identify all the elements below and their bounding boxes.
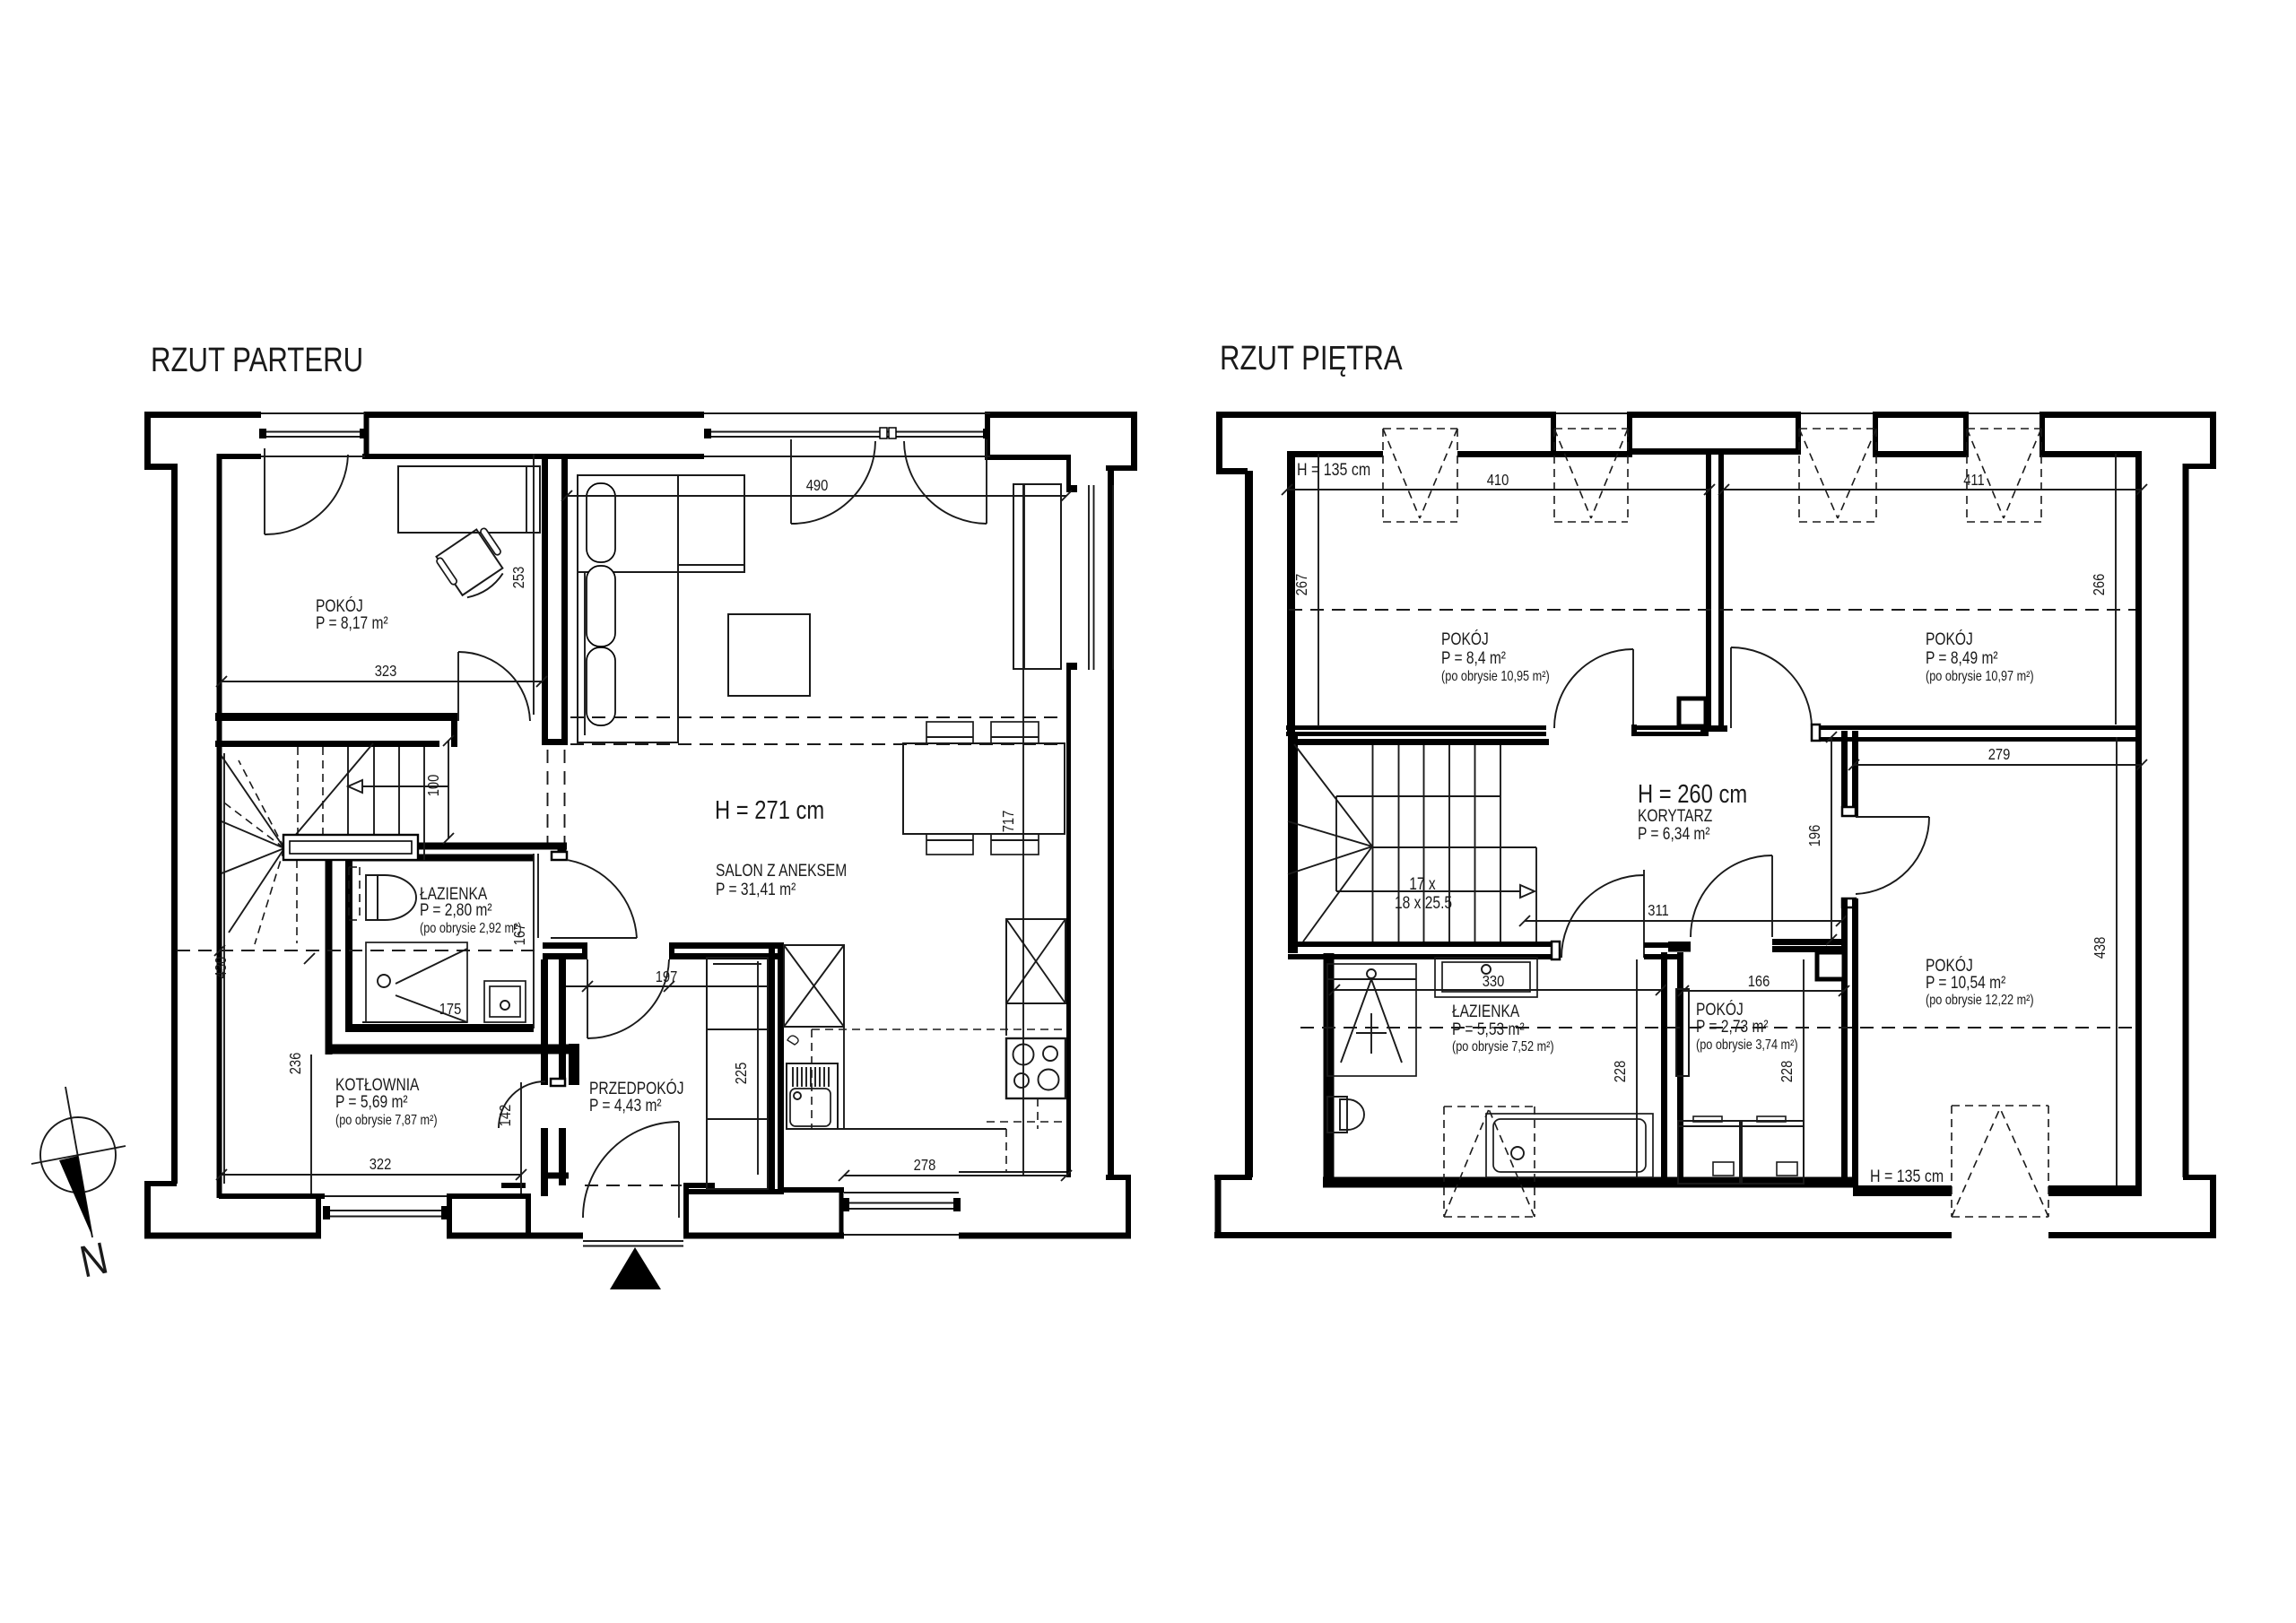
- svg-text:330: 330: [1483, 973, 1505, 991]
- svg-text:197: 197: [656, 968, 678, 986]
- svg-text:P = 8,49 m²: P = 8,49 m²: [1926, 648, 1998, 668]
- svg-text:279: 279: [1988, 746, 2011, 764]
- svg-text:P = 4,43 m²: P = 4,43 m²: [589, 1096, 662, 1115]
- svg-text:228: 228: [1612, 1061, 1630, 1083]
- svg-text:225: 225: [733, 1063, 751, 1085]
- svg-text:POKÓJ: POKÓJ: [1926, 629, 1973, 649]
- svg-text:166: 166: [1748, 973, 1770, 991]
- svg-text:H = 135 cm: H = 135 cm: [1870, 1167, 1944, 1186]
- svg-text:P = 5,53 m²: P = 5,53 m²: [1452, 1020, 1525, 1039]
- svg-text:18 x 25.5: 18 x 25.5: [1395, 893, 1452, 913]
- svg-text:P = 6,34 m²: P = 6,34 m²: [1638, 824, 1710, 844]
- svg-text:(po obrysie 7,52 m²): (po obrysie 7,52 m²): [1452, 1039, 1554, 1055]
- svg-text:236: 236: [287, 1053, 305, 1075]
- svg-text:SALON Z ANEKSEM: SALON Z ANEKSEM: [716, 861, 847, 881]
- svg-text:17 x: 17 x: [1409, 874, 1436, 894]
- svg-text:P = 2,80 m²: P = 2,80 m²: [420, 900, 492, 920]
- svg-text:(po obrysie 2,92 m²): (po obrysie 2,92 m²): [420, 921, 522, 936]
- svg-text:410: 410: [1487, 472, 1509, 490]
- svg-text:(po obrysie 7,87 m²): (po obrysie 7,87 m²): [335, 1113, 438, 1128]
- svg-text:430: 430: [213, 957, 230, 979]
- svg-text:P = 8,4 m²: P = 8,4 m²: [1441, 648, 1506, 668]
- svg-text:ŁAZIENKA: ŁAZIENKA: [1452, 1002, 1520, 1021]
- svg-text:311: 311: [1648, 902, 1669, 920]
- svg-text:228: 228: [1779, 1061, 1796, 1083]
- svg-text:P = 31,41 m²: P = 31,41 m²: [716, 880, 796, 899]
- svg-text:(po obrysie 10,95 m²): (po obrysie 10,95 m²): [1441, 669, 1550, 684]
- svg-text:KORYTARZ: KORYTARZ: [1638, 806, 1713, 826]
- svg-text:100: 100: [425, 775, 443, 797]
- svg-text:490: 490: [806, 477, 829, 495]
- svg-text:RZUT PARTERU: RZUT PARTERU: [151, 342, 363, 379]
- svg-text:267: 267: [1293, 574, 1311, 596]
- svg-text:278: 278: [914, 1157, 936, 1175]
- svg-text:266: 266: [2091, 574, 2109, 596]
- svg-text:RZUT PIĘTRA: RZUT PIĘTRA: [1220, 340, 1403, 378]
- svg-text:P = 10,54 m²: P = 10,54 m²: [1926, 973, 2005, 993]
- svg-text:P = 8,17 m²: P = 8,17 m²: [316, 613, 388, 633]
- svg-text:323: 323: [375, 663, 397, 681]
- svg-text:H = 135 cm: H = 135 cm: [1297, 460, 1370, 480]
- svg-text:717: 717: [1000, 811, 1018, 833]
- svg-text:(po obrysie 10,97 m²): (po obrysie 10,97 m²): [1926, 669, 2034, 684]
- svg-text:411: 411: [1963, 472, 1985, 490]
- svg-text:POKÓJ: POKÓJ: [1441, 629, 1489, 649]
- svg-text:P = 5,69 m²: P = 5,69 m²: [335, 1092, 408, 1112]
- svg-text:322: 322: [370, 1156, 392, 1174]
- svg-text:167: 167: [511, 924, 529, 946]
- svg-text:196: 196: [1806, 825, 1824, 847]
- svg-text:H = 260 cm: H = 260 cm: [1638, 779, 1747, 809]
- svg-text:438: 438: [2092, 937, 2109, 959]
- svg-text:P = 2,73 m²: P = 2,73 m²: [1696, 1017, 1769, 1037]
- svg-text:H = 271 cm: H = 271 cm: [715, 795, 824, 825]
- svg-text:175: 175: [439, 1001, 462, 1019]
- svg-text:253: 253: [510, 567, 528, 589]
- svg-text:142: 142: [497, 1105, 515, 1127]
- svg-text:(po obrysie 3,74 m²): (po obrysie 3,74 m²): [1696, 1037, 1798, 1053]
- svg-text:(po obrysie 12,22 m²): (po obrysie 12,22 m²): [1926, 993, 2034, 1008]
